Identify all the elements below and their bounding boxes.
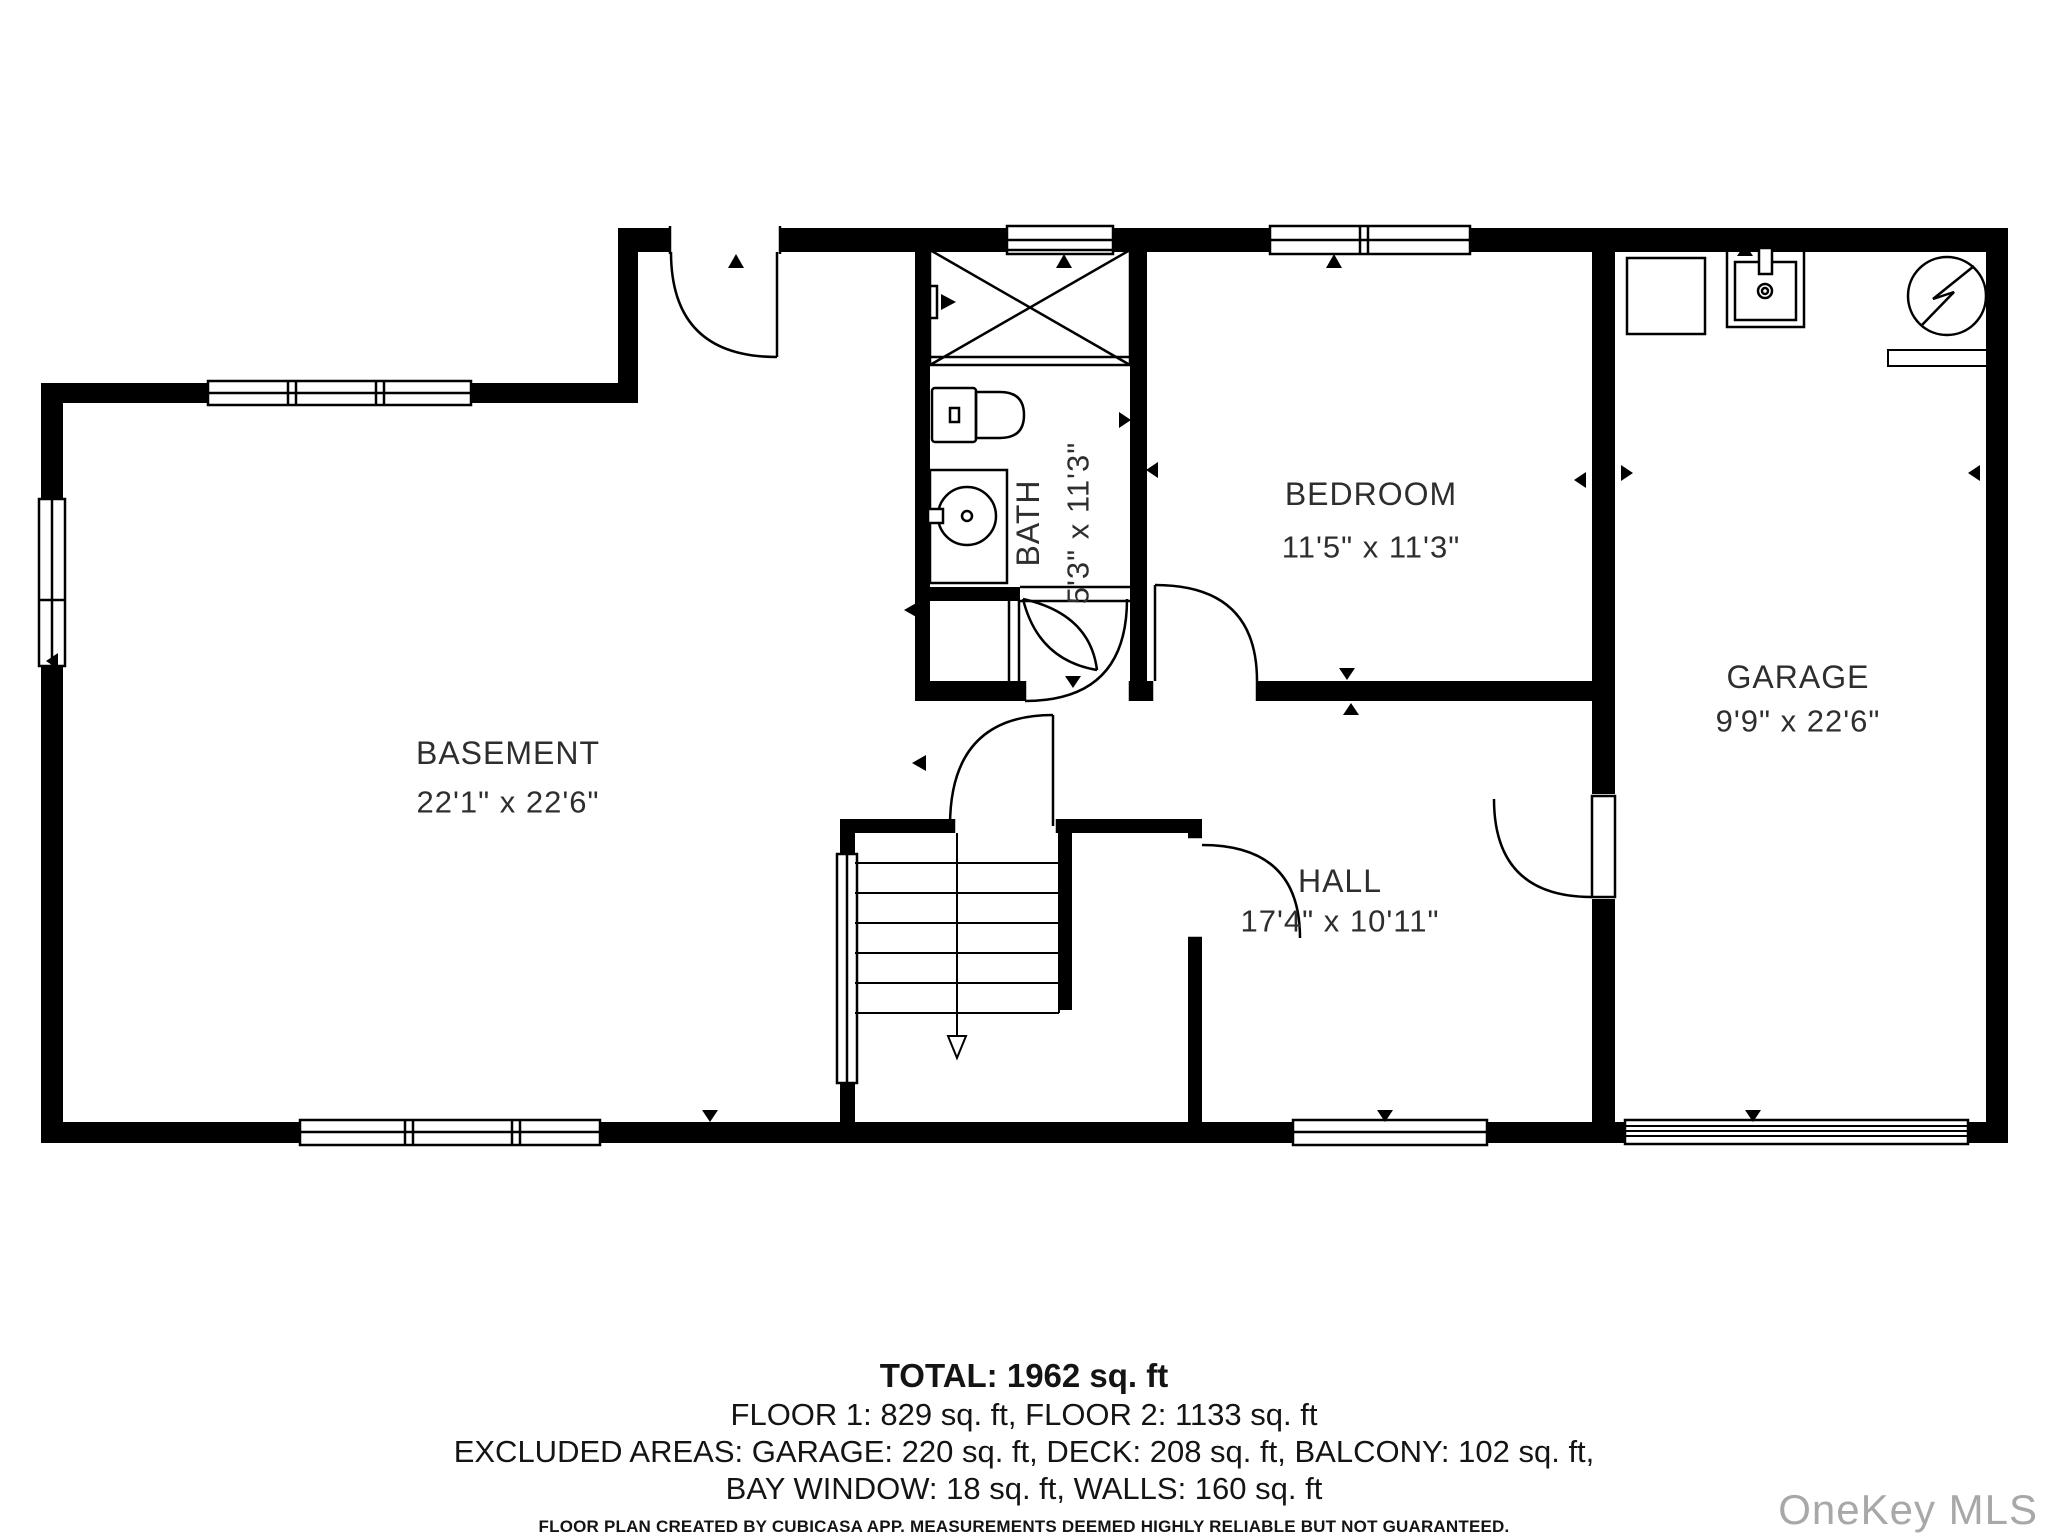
total-area: TOTAL: 1962 sq. ft bbox=[0, 1356, 2048, 1396]
excluded-areas-line2: BAY WINDOW: 18 sq. ft, WALLS: 160 sq. ft bbox=[0, 1470, 2048, 1507]
disclaimer: FLOOR PLAN CREATED BY CUBICASA APP. MEAS… bbox=[0, 1517, 2048, 1536]
arrow-basement-bottom bbox=[702, 1110, 718, 1122]
stairs-door bbox=[950, 715, 1057, 835]
wall-garage-west-lower bbox=[1592, 899, 1615, 1122]
label-basement: BASEMENT bbox=[416, 735, 600, 771]
wall-garage-west-upper bbox=[1592, 228, 1615, 794]
floor-plan: BASEMENT 22'1" x 22'6" BEDROOM 11'5" x 1… bbox=[0, 0, 2048, 1536]
entry-door bbox=[670, 226, 780, 357]
garage-entry-door bbox=[1494, 794, 1618, 899]
shelf-icon bbox=[1888, 350, 1988, 366]
wall-right bbox=[1986, 228, 2008, 1143]
window-bay-left bbox=[39, 499, 65, 666]
label-garage-dims: 9'9" x 22'6" bbox=[1716, 704, 1881, 739]
label-hall: HALL bbox=[1298, 863, 1382, 899]
arrow-landing-west-2 bbox=[912, 755, 926, 771]
wall-stair-east bbox=[1059, 833, 1072, 1010]
label-garage: GARAGE bbox=[1727, 659, 1870, 695]
arrow-hall-top-down bbox=[1339, 668, 1355, 680]
garage-sink-icon bbox=[1727, 248, 1804, 327]
electric-panel-icon bbox=[1908, 257, 1986, 335]
window-hall-bottom bbox=[1293, 1120, 1487, 1145]
wall-hall-top-c bbox=[1257, 681, 1592, 701]
wall-jog bbox=[618, 228, 638, 403]
stairs-icon bbox=[855, 833, 1059, 1058]
washer-icon bbox=[1627, 258, 1705, 334]
window-stair-west bbox=[837, 854, 857, 1083]
toilet-icon bbox=[932, 388, 1024, 442]
arrow-entry bbox=[728, 254, 744, 268]
label-bath: BATH bbox=[1010, 480, 1046, 567]
watermark: OneKey MLS bbox=[1778, 1486, 2038, 1534]
label-bedroom-dims: 11'5" x 11'3" bbox=[1282, 530, 1460, 565]
label-basement-dims: 22'1" x 22'6" bbox=[416, 785, 599, 820]
wall-bath-bedroom bbox=[1130, 250, 1147, 681]
window-basement-bottom bbox=[300, 1120, 600, 1145]
wall-bath-bottom bbox=[915, 587, 1020, 601]
bath-sink-icon bbox=[928, 470, 1007, 583]
label-hall-dims: 17'4" x 10'11" bbox=[1241, 904, 1440, 939]
wall-understair-east-a bbox=[1188, 819, 1202, 837]
arrow-landing-west bbox=[904, 602, 918, 618]
arrow-bedroom-window bbox=[1326, 254, 1342, 268]
arrow-garage-east bbox=[1968, 465, 1980, 481]
excluded-areas-line1: EXCLUDED AREAS: GARAGE: 220 sq. ft, DECK… bbox=[0, 1433, 2048, 1470]
wall-hall-top-a bbox=[918, 681, 1025, 701]
label-bath-dims: 5'3" x 11'3" bbox=[1061, 442, 1096, 604]
wall-bath-west bbox=[915, 250, 930, 701]
shower-icon bbox=[930, 250, 1130, 365]
arrow-bedroom-west bbox=[1119, 412, 1131, 428]
window-bedroom-top bbox=[1270, 226, 1470, 254]
label-bedroom: BEDROOM bbox=[1285, 476, 1457, 512]
arrow-garage-west bbox=[1621, 465, 1633, 481]
wall-left bbox=[41, 383, 63, 1143]
area-summary: TOTAL: 1962 sq. ft FLOOR 1: 829 sq. ft, … bbox=[0, 1356, 2048, 1536]
arrow-bedroom-east bbox=[1574, 472, 1586, 488]
floor-plan-page: BASEMENT 22'1" x 22'6" BEDROOM 11'5" x 1… bbox=[0, 0, 2048, 1536]
arrow-bedroom-west-2 bbox=[1146, 462, 1158, 478]
arrow-bath-window bbox=[1056, 254, 1072, 268]
wall-stair-top-b bbox=[1057, 819, 1202, 833]
arrow-hall-top-up bbox=[1343, 703, 1359, 715]
floor-areas: FLOOR 1: 829 sq. ft, FLOOR 2: 1133 sq. f… bbox=[0, 1396, 2048, 1433]
wall-stair-top-a bbox=[840, 819, 954, 833]
window-basement-top bbox=[208, 381, 471, 405]
bedroom-door bbox=[1152, 585, 1257, 703]
garage-door bbox=[1625, 1120, 1968, 1144]
wall-understair-east-b bbox=[1188, 938, 1202, 1122]
wall-hall-top-b bbox=[1130, 681, 1152, 701]
